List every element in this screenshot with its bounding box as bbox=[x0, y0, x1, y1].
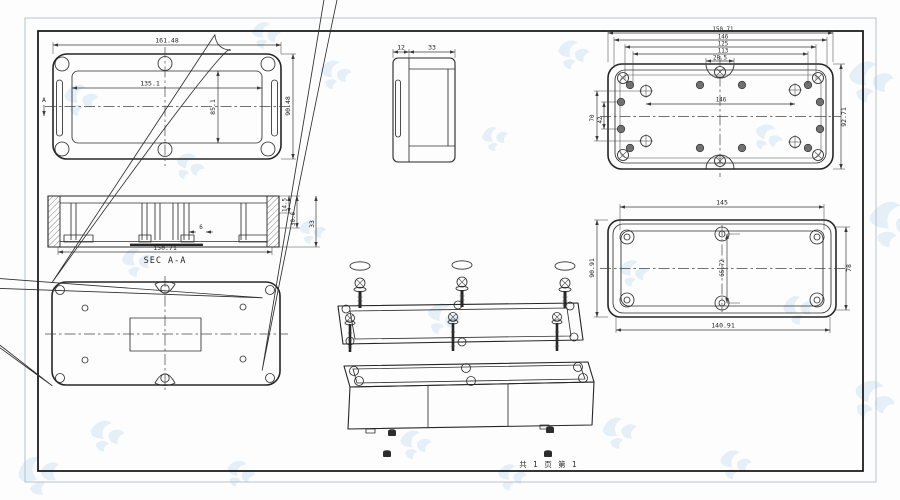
svg-text:28.5: 28.5 bbox=[713, 56, 727, 62]
dim-section-depth-small: 14.5 bbox=[283, 198, 289, 212]
dim-cover-right-height: 78 bbox=[845, 264, 853, 272]
dim-lid-inner-height: 85.1 bbox=[209, 99, 217, 115]
dim-stack: 150.71 146 125 113 28.5 bbox=[608, 27, 833, 84]
sheet-footer: 共 1 页 第 1 bbox=[519, 459, 579, 469]
dim-section-height: 33 bbox=[308, 220, 316, 228]
view-lid-top: 161.48 135.1 85.1 90.48 A bbox=[42, 37, 296, 167]
dim-section-width: 150.71 bbox=[153, 244, 177, 252]
dim-base-left-span-a: 70 bbox=[590, 114, 596, 121]
svg-text:125: 125 bbox=[718, 42, 729, 48]
dim-base-hole-span: 146 bbox=[716, 98, 727, 104]
dim-section-depth-large: 30.6 bbox=[291, 212, 297, 226]
dim-cover-top-width: 145 bbox=[716, 199, 728, 207]
dim-base-height: 92.71 bbox=[840, 107, 848, 127]
engineering-drawing-sheet: 161.48 135.1 85.1 90.48 A 12 33 bbox=[0, 0, 900, 500]
dim-base-left-span-b: 42 bbox=[598, 117, 604, 124]
dim-lid-inner-width: 135.1 bbox=[140, 80, 160, 88]
view-bottom bbox=[0, 0, 530, 489]
section-bottom-bosses bbox=[64, 235, 267, 242]
section-ribs bbox=[71, 203, 246, 240]
exploded-lid bbox=[338, 301, 583, 346]
svg-text:113: 113 bbox=[718, 49, 729, 55]
exploded-base bbox=[344, 362, 594, 433]
svg-text:A: A bbox=[42, 96, 46, 104]
corner-feet bbox=[0, 0, 530, 489]
svg-text:146: 146 bbox=[718, 35, 729, 41]
view-side: 12 33 bbox=[393, 44, 455, 163]
section-marker-a: A bbox=[42, 96, 46, 116]
section-label: SEC A-A bbox=[144, 256, 187, 266]
dim-side-lid-thickness: 12 bbox=[397, 44, 405, 52]
dim-rib-width: 6 bbox=[199, 225, 203, 231]
dim-lid-height: 90.48 bbox=[284, 96, 292, 116]
drawing-canvas: 161.48 135.1 85.1 90.48 A 12 33 bbox=[0, 0, 900, 500]
svg-text:150.71: 150.71 bbox=[713, 27, 734, 33]
dim-cover-bottom-width: 140.91 bbox=[711, 322, 735, 330]
dim-lid-width: 161.48 bbox=[155, 37, 179, 45]
view-base-interior: 146 150.71 146 125 113 28.5 92.71 70 bbox=[590, 27, 848, 177]
screws-upper bbox=[350, 261, 575, 308]
dim-cover-left-height: 90.91 bbox=[588, 258, 596, 278]
dim-cover-screw-span: 65.72 bbox=[720, 259, 726, 276]
dim-side-body-depth: 33 bbox=[428, 44, 436, 52]
view-exploded bbox=[338, 261, 594, 457]
